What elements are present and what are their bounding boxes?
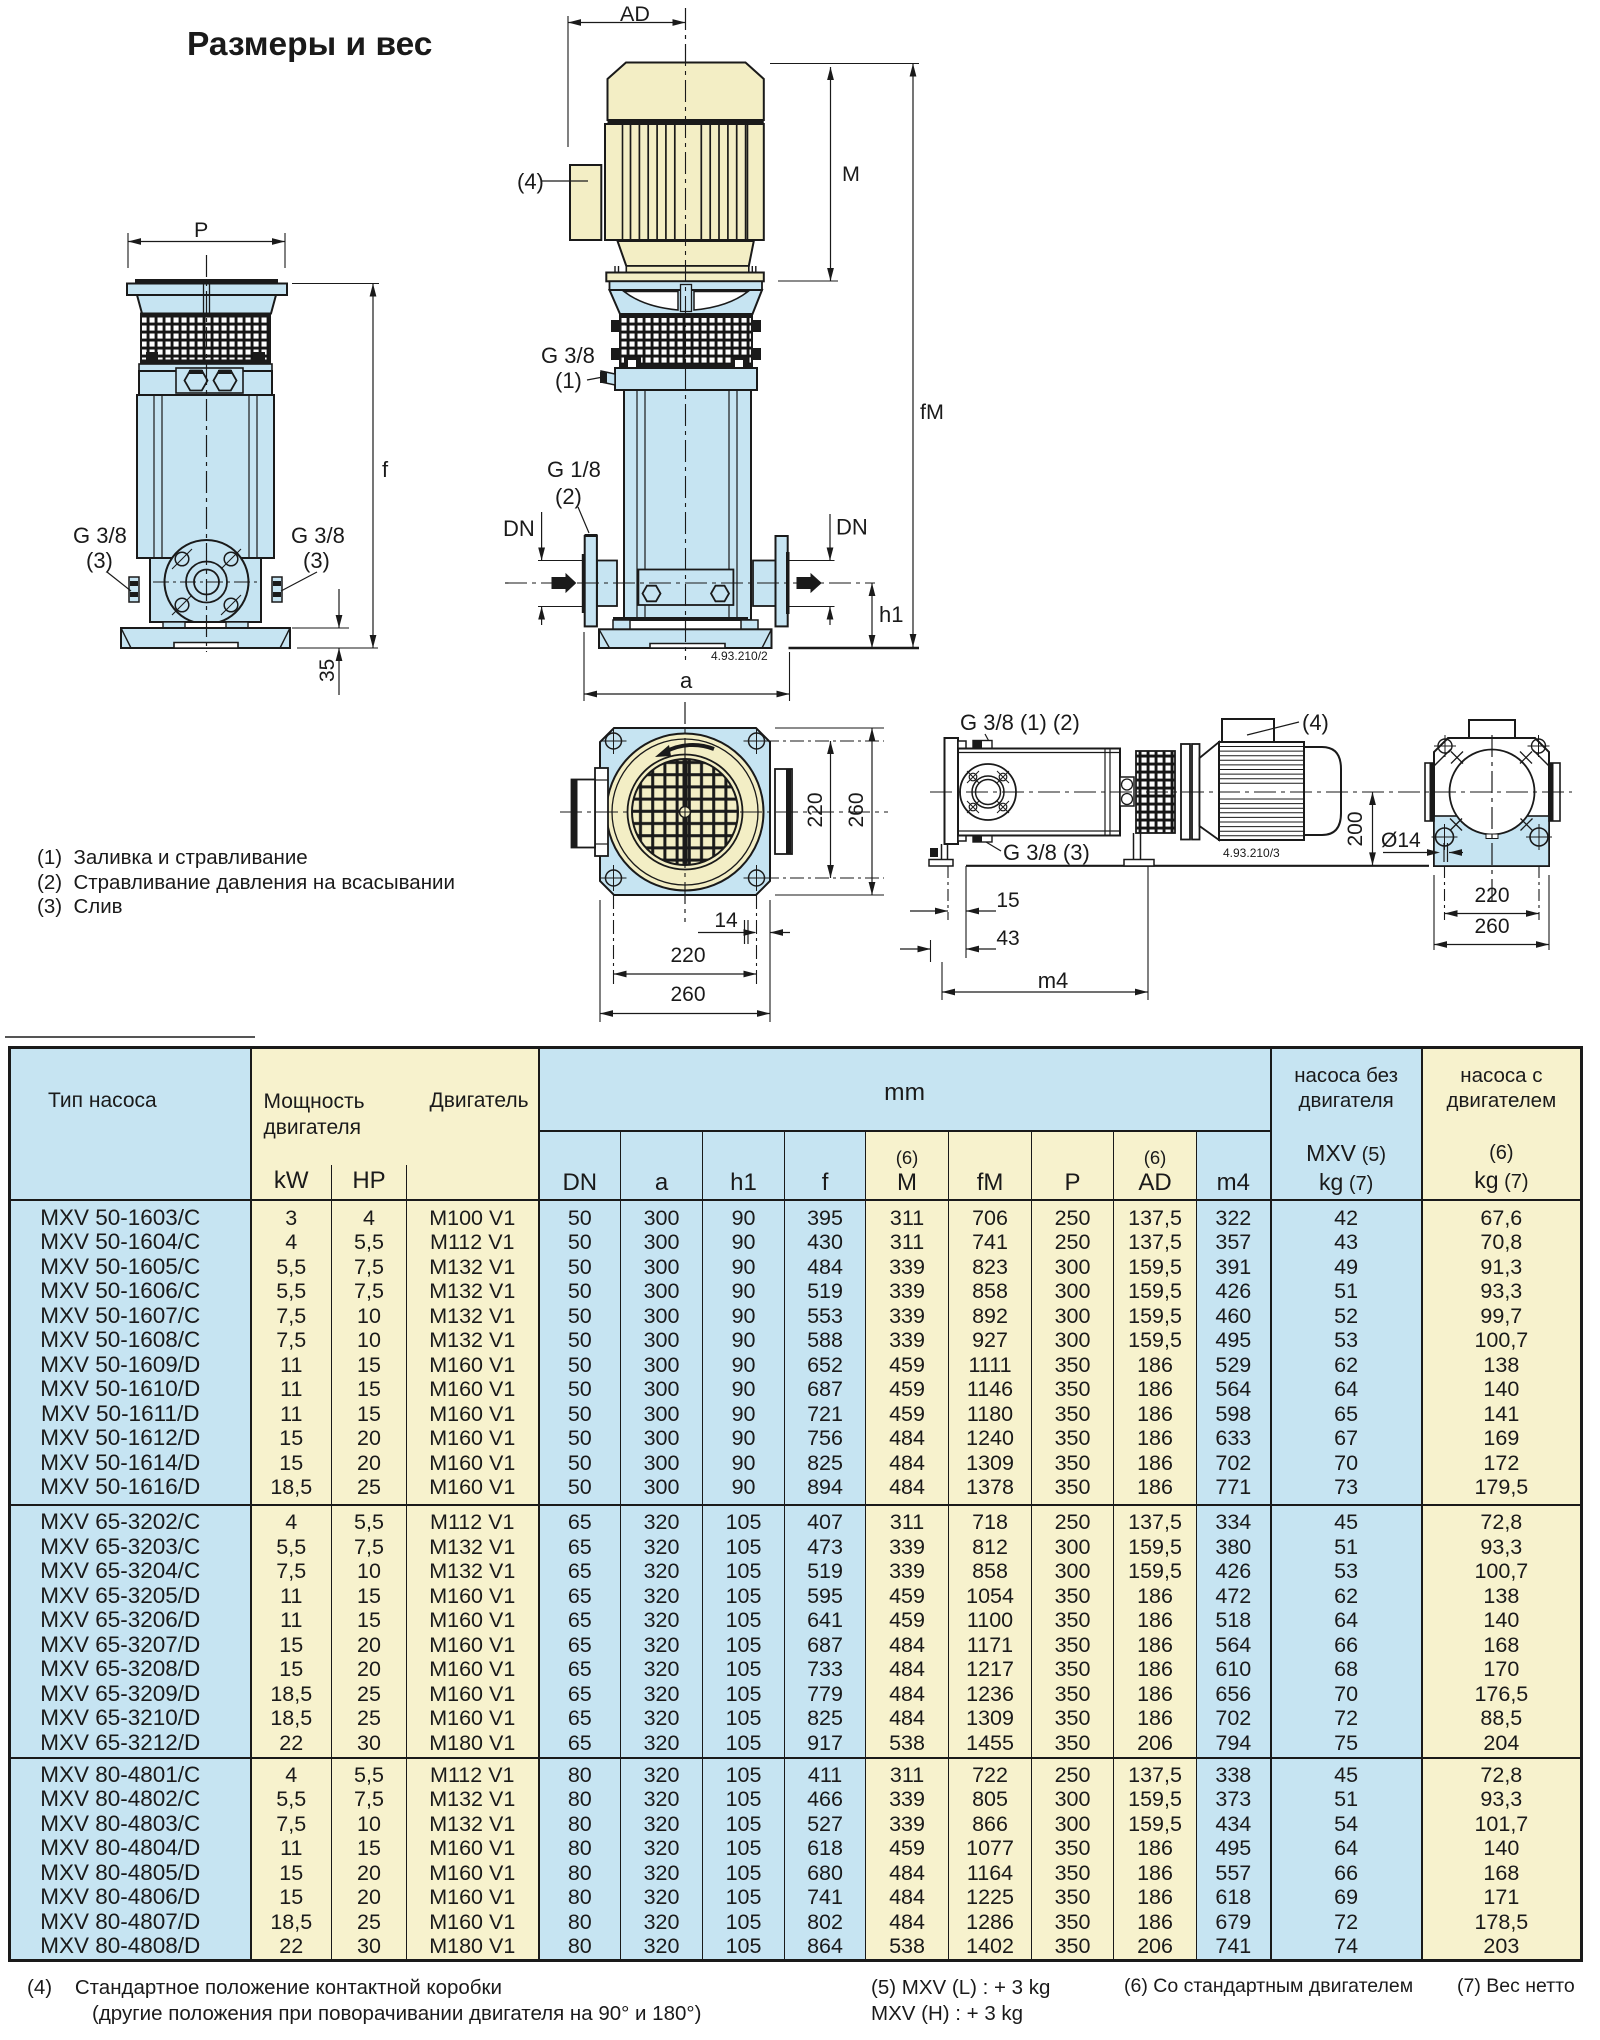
svg-text:P: P <box>194 218 208 242</box>
svg-text:260: 260 <box>845 792 868 827</box>
svg-text:14: 14 <box>714 909 738 932</box>
svg-text:(3): (3) <box>303 548 330 573</box>
svg-text:G 1/8: G 1/8 <box>547 457 601 482</box>
svg-text:200: 200 <box>1344 811 1367 846</box>
svg-text:220: 220 <box>804 792 827 827</box>
svg-text:220: 220 <box>670 944 705 967</box>
svg-text:Ø14: Ø14 <box>1381 829 1421 852</box>
svg-text:(3): (3) <box>86 548 113 573</box>
svg-text:43: 43 <box>996 927 1019 950</box>
svg-text:G 3/8: G 3/8 <box>291 523 345 548</box>
svg-text:15: 15 <box>996 889 1019 912</box>
svg-text:AD: AD <box>620 2 650 26</box>
svg-text:G 3/8 (3): G 3/8 (3) <box>1003 840 1090 865</box>
svg-text:a: a <box>680 668 693 693</box>
svg-text:(4): (4) <box>517 169 544 194</box>
svg-text:4.93.210/3: 4.93.210/3 <box>1223 846 1280 860</box>
svg-text:35: 35 <box>316 659 339 682</box>
svg-text:(1): (1) <box>555 368 582 393</box>
svg-text:DN: DN <box>503 516 535 541</box>
svg-text:(2): (2) <box>555 484 582 509</box>
svg-text:G 3/8: G 3/8 <box>541 343 595 368</box>
svg-text:(4): (4) <box>1302 710 1329 735</box>
svg-text:260: 260 <box>1474 915 1509 938</box>
svg-text:260: 260 <box>670 983 705 1006</box>
svg-text:G 3/8: G 3/8 <box>73 523 127 548</box>
svg-text:h1: h1 <box>879 602 903 627</box>
svg-text:G 3/8 (1) (2): G 3/8 (1) (2) <box>960 710 1080 735</box>
svg-text:f: f <box>382 457 389 482</box>
svg-text:m4: m4 <box>1038 968 1069 993</box>
svg-text:DN: DN <box>836 515 868 540</box>
svg-text:fM: fM <box>920 400 944 424</box>
svg-text:M: M <box>842 162 860 186</box>
svg-text:4.93.210/2: 4.93.210/2 <box>711 649 768 663</box>
